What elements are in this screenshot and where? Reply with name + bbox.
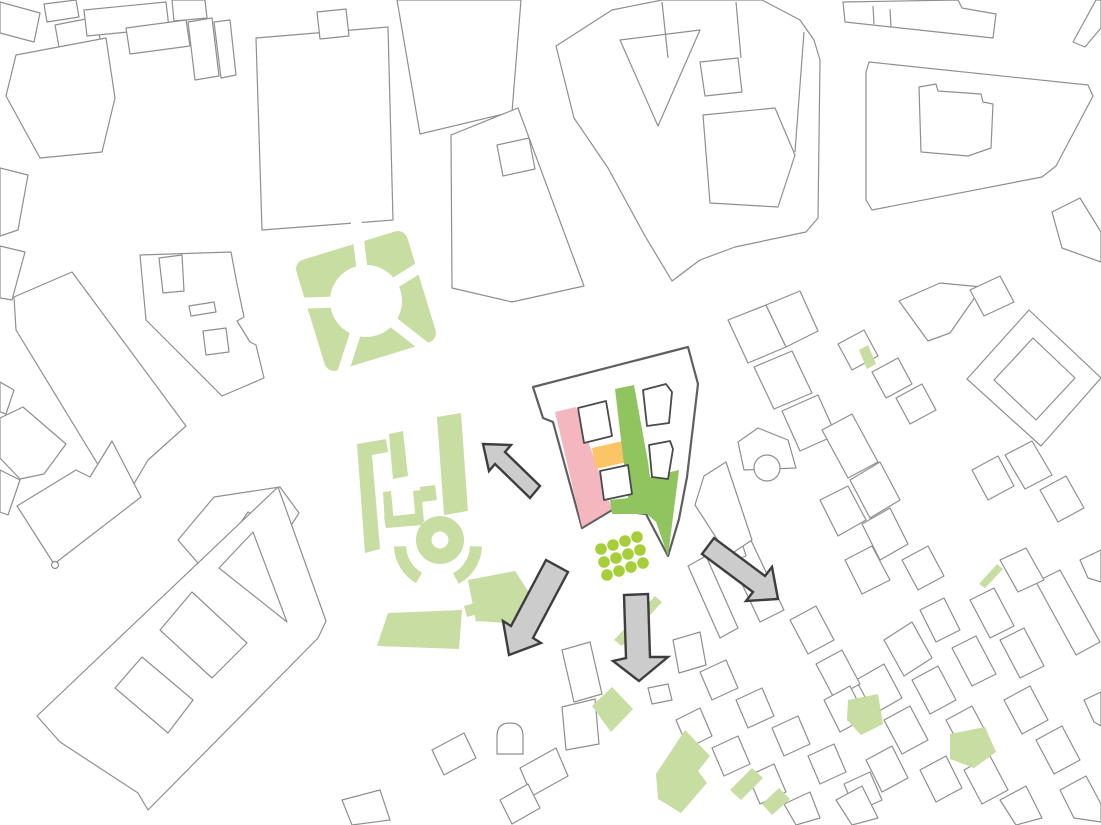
site-courtyard [600, 465, 632, 500]
building [754, 351, 812, 409]
building [736, 688, 774, 728]
intervention-site [533, 347, 698, 556]
green-area [656, 730, 710, 813]
tree-grid [595, 531, 649, 581]
tree-dot [607, 539, 619, 551]
building [972, 456, 1014, 500]
building [1084, 692, 1101, 726]
building [920, 598, 960, 642]
garden-bed [437, 413, 468, 515]
site-courtyard [649, 441, 673, 479]
building [1036, 570, 1100, 655]
building [432, 733, 476, 775]
building [1000, 628, 1044, 678]
green-area [979, 564, 1003, 588]
building [1004, 686, 1048, 734]
building [784, 792, 820, 825]
garden-bed [377, 610, 462, 649]
building [712, 736, 750, 776]
building [44, 0, 79, 22]
building [884, 622, 932, 676]
building [970, 588, 1014, 638]
tree-dot [622, 548, 634, 560]
tree-dot [598, 556, 610, 568]
building [695, 462, 752, 556]
building [772, 716, 810, 756]
arrow-northwest [483, 444, 540, 498]
building [0, 470, 20, 515]
building [808, 744, 846, 784]
site-courtyard [578, 401, 612, 443]
tree-dot [619, 535, 631, 547]
courtyard [703, 108, 795, 207]
garden-bed [420, 485, 437, 502]
building [1000, 786, 1042, 825]
building [256, 27, 393, 230]
building [899, 283, 982, 341]
courtyard [700, 58, 742, 96]
tree-dot [637, 557, 649, 569]
building [902, 546, 944, 590]
building [0, 246, 25, 300]
building [1040, 476, 1084, 522]
building [1080, 550, 1101, 582]
building [317, 9, 349, 39]
site-courtyard [643, 384, 672, 426]
building [790, 606, 834, 654]
building [0, 168, 28, 236]
kiosk-building [52, 562, 59, 569]
building [1073, 0, 1101, 47]
courtyard [497, 138, 535, 176]
fountain-center [432, 532, 449, 549]
garden-arc [394, 546, 422, 583]
building [970, 276, 1014, 316]
green-area [847, 694, 883, 735]
building [6, 38, 115, 158]
building [140, 252, 264, 396]
building [0, 382, 14, 414]
building [1036, 726, 1080, 774]
tree-dot [601, 569, 613, 581]
building [952, 636, 996, 686]
building [451, 108, 584, 302]
tree-dot [613, 565, 625, 577]
building [912, 666, 956, 714]
building [0, 2, 40, 42]
building [843, 0, 996, 38]
building [673, 632, 706, 673]
arch-opening [754, 455, 780, 481]
building [0, 407, 66, 479]
tree-dot [631, 531, 643, 543]
building [562, 642, 602, 702]
courtyard [203, 328, 229, 355]
site-plan-diagram [0, 0, 1101, 825]
building [342, 790, 390, 825]
building [920, 756, 962, 802]
garden-bed [389, 431, 408, 479]
building [172, 0, 207, 21]
tree-dot [595, 543, 607, 555]
building [700, 660, 738, 700]
building [648, 684, 672, 704]
map-canvas [0, 0, 1101, 825]
building [782, 395, 836, 451]
building [816, 650, 860, 698]
tree-dot [610, 552, 622, 564]
building [1060, 776, 1101, 822]
tree-dot [634, 544, 646, 556]
arch-house [497, 723, 523, 754]
courtyard [159, 255, 184, 293]
tree-dot [625, 561, 637, 573]
building [1052, 198, 1101, 262]
